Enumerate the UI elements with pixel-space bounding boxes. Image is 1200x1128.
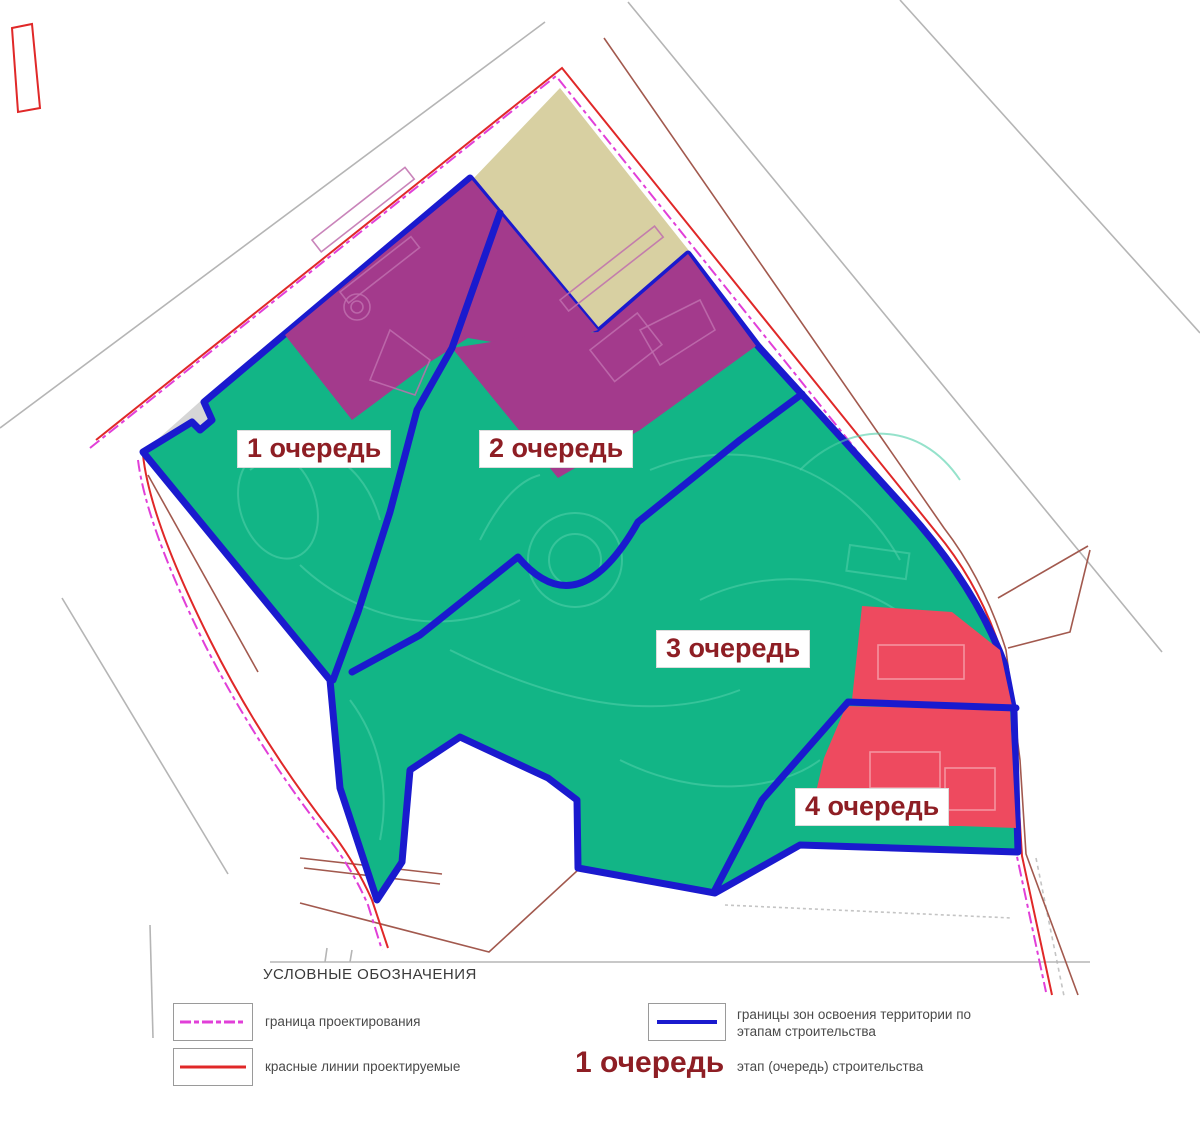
legend-stage-sample: 1 очередь — [575, 1046, 724, 1080]
zone-label-stage4: 4 очередь — [795, 788, 949, 826]
legend-label-stage-meaning: этап (очередь) строительства — [737, 1058, 923, 1075]
red-lines-sample-line — [174, 1049, 252, 1085]
zone-label-stage2: 2 очередь — [479, 430, 633, 468]
legend-label-red-lines: красные линии проектируемые — [265, 1058, 460, 1075]
legend-swatch-red-lines — [173, 1048, 253, 1086]
zone-label-stage1: 1 очередь — [237, 430, 391, 468]
legend-label-design-boundary: граница проектирования — [265, 1013, 420, 1030]
stage-zones-sample-line — [649, 1004, 725, 1040]
zone-label-stage3: 3 очередь — [656, 630, 810, 668]
legend-label-stage-zones-line2: этапам строительства — [737, 1023, 971, 1040]
design-boundary-sample-line — [174, 1004, 252, 1040]
legend-label-stage-zones-line1: границы зон освоения территории по — [737, 1006, 971, 1023]
legend-swatch-design-boundary — [173, 1003, 253, 1041]
legend-swatch-stage-zones — [648, 1003, 726, 1041]
site-plan-map — [0, 0, 1200, 1128]
legend-label-stage-zones: границы зон освоения территории по этапа… — [737, 1006, 971, 1040]
site-plan-page: 1 очередь 2 очередь 3 очередь 4 очередь … — [0, 0, 1200, 1128]
legend-title: УСЛОВНЫЕ ОБОЗНАЧЕНИЯ — [263, 966, 477, 983]
